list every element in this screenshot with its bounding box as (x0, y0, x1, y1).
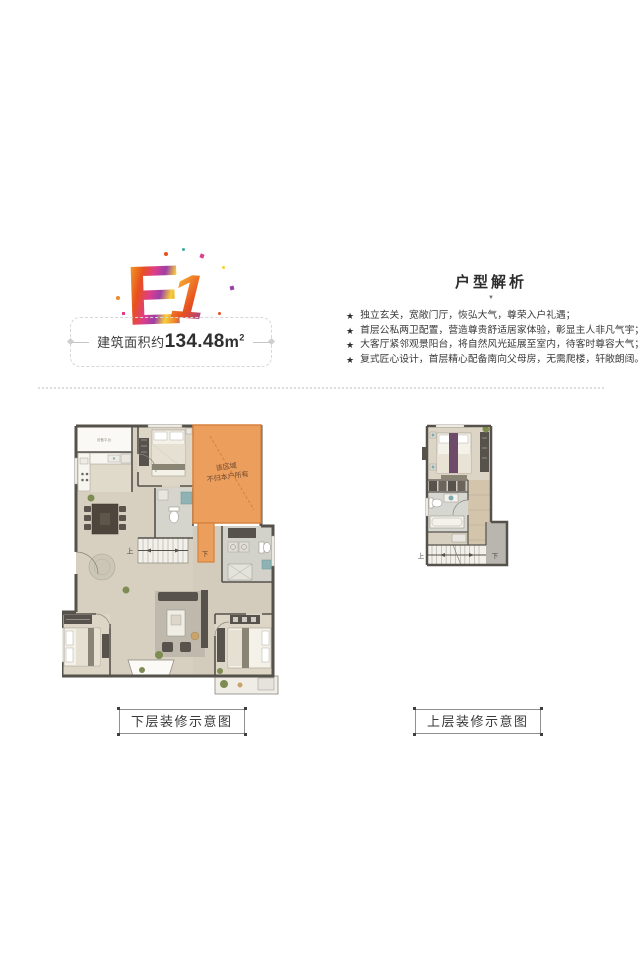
confetti-dot (230, 286, 235, 291)
corner-dot-icon (540, 733, 543, 736)
caret-down-icon: ▼ (346, 295, 636, 301)
building-area-box: 建筑面积约134.48m2 (70, 317, 272, 367)
confetti-dot (218, 312, 221, 315)
corner-dot-icon (117, 733, 120, 736)
corner-dot-icon (413, 733, 416, 736)
stairs-up-label: 上 (127, 547, 134, 556)
stairs-up-label: 上 (418, 551, 425, 560)
area-unit-sup: 2 (239, 333, 245, 343)
stairs-down-label: 下 (492, 552, 499, 560)
confetti-dot (222, 266, 225, 269)
star-icon: ★ (346, 338, 354, 353)
corner-dot-icon (540, 707, 543, 710)
unit-analysis-panel: 户型解析 ▼ ★独立玄关，宽敞门厅，恢弘大气，尊荣入户礼遇； ★首层公私两卫配置… (346, 271, 636, 367)
bay-window (128, 660, 174, 676)
confetti-dot (122, 312, 125, 315)
dotted-divider (38, 387, 604, 389)
upper-bedroom (430, 426, 490, 480)
corner-dot-icon (244, 733, 247, 736)
caption-text: 下层装修示意图 (131, 714, 233, 729)
star-icon: ★ (346, 324, 354, 339)
bullet-text: 复式匠心设计，首层精心配备南向父母房，无需爬楼，轩敞朗阔。 (360, 353, 640, 368)
confetti-dot (199, 253, 204, 258)
lower-floorplan: 设备平台 (62, 414, 298, 700)
corner-dot-icon (244, 707, 247, 710)
platform-label: 设备平台 (97, 437, 112, 442)
analysis-bullet: ★大客厅紧邻观景阳台，将自然风光延展至室内，待客时尊容大气； (346, 338, 636, 353)
star-icon: ★ (346, 353, 354, 368)
ac-unit (422, 447, 427, 460)
confetti-dot (116, 296, 120, 300)
decor-line (71, 342, 89, 343)
star-icon: ★ (346, 309, 354, 324)
lower-plan-caption: 下层装修示意图 (119, 709, 245, 734)
analysis-bullet-list: ★独立玄关，宽敞门厅，恢弘大气，尊荣入户礼遇； ★首层公私两卫配置，营造尊贵舒适… (346, 309, 636, 367)
analysis-title: 户型解析 (346, 271, 636, 292)
building-area: 建筑面积约134.48m2 (71, 331, 271, 353)
page: { "logo": { "letter_e": "E", "letter_one… (0, 0, 640, 980)
stairs-down-label: 下 (202, 550, 209, 558)
analysis-bullet: ★首层公私两卫配置，营造尊贵舒适居家体验，彰显主人非凡气宇； (346, 324, 636, 339)
bullet-text: 大客厅紧邻观景阳台，将自然风光延展至室内，待客时尊容大气； (360, 338, 640, 353)
corner-dot-icon (117, 707, 120, 710)
confetti-dot (182, 248, 185, 251)
area-value: 134.48 (165, 331, 225, 352)
stairs (138, 538, 188, 563)
analysis-bullet: ★复式匠心设计，首层精心配备南向父母房，无需爬楼，轩敞朗阔。 (346, 353, 636, 368)
caption-text: 上层装修示意图 (427, 714, 529, 729)
corner-dot-icon (413, 707, 416, 710)
decor-line (253, 342, 271, 343)
area-unit: m (225, 334, 240, 351)
bullet-text: 独立玄关，宽敞门厅，恢弘大气，尊荣入户礼遇； (360, 309, 576, 324)
upper-floorplan: 上 下 (404, 420, 519, 570)
bullet-text: 首层公私两卫配置，营造尊贵舒适居家体验，彰显主人非凡气宇； (360, 324, 640, 339)
confetti-dot (164, 252, 168, 256)
analysis-bullet: ★独立玄关，宽敞门厅，恢弘大气，尊荣入户礼遇； (346, 309, 636, 324)
area-label: 建筑面积约 (97, 335, 165, 350)
upper-plan-caption: 上层装修示意图 (415, 709, 541, 734)
